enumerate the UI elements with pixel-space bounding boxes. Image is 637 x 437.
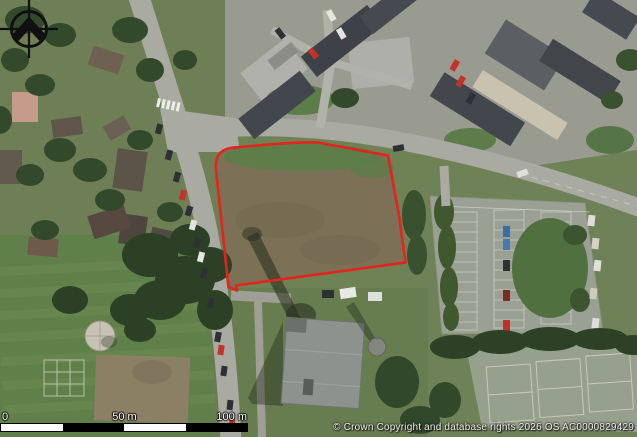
copyright-attribution: © Crown Copyright and database rights 20… (333, 422, 634, 433)
north-compass-icon (0, 0, 58, 58)
scale-segment (124, 424, 186, 431)
scale-segment (1, 424, 63, 431)
scale-label-0: 0 (2, 411, 8, 423)
aerial-photo (0, 0, 637, 437)
scale-segment (186, 424, 248, 431)
scale-label-50: 50 m (112, 411, 136, 423)
aerial-map: 0 50 m 100 m © Crown Copyright and datab… (0, 0, 637, 437)
scale-bar-labels: 0 50 m 100 m (0, 410, 249, 423)
scale-bar-segments (0, 423, 248, 432)
scale-segment (63, 424, 125, 431)
scale-label-100: 100 m (216, 411, 247, 423)
